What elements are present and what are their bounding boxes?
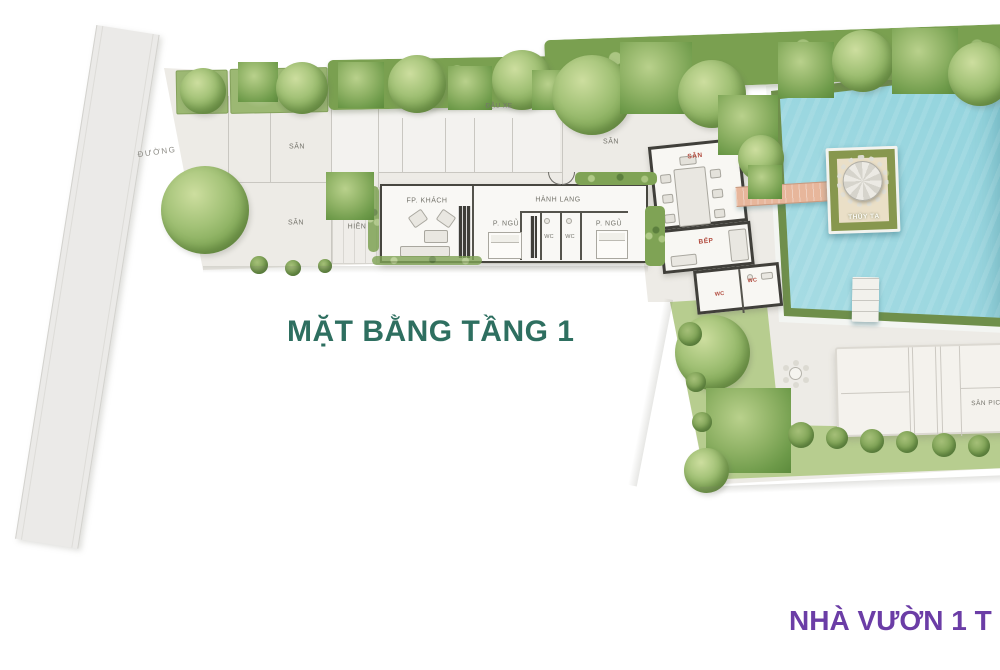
wc-fixture [566,218,572,224]
court-line [935,347,938,437]
caption-text: NHÀ VƯỜN 1 T [789,605,992,637]
tree [180,68,226,114]
yard-label: SÂN [603,139,619,146]
court-label: SÂN PICK [971,399,1000,407]
shrub [285,260,301,276]
tree [338,62,384,108]
wardrobe [530,216,537,258]
hedge [372,256,482,265]
armchair-icon [408,209,429,229]
bedroom-label: P. NGỦ [596,221,622,228]
court-line [908,347,911,437]
wall [540,213,542,260]
tree [276,62,328,114]
shrub [860,429,884,453]
wall [560,213,562,260]
coffee-table-icon [424,230,448,243]
tree [778,42,834,98]
tree [684,448,729,493]
shrub [250,256,268,274]
bedroom-label: P. NGỦ [493,221,519,228]
chair-icon [664,214,676,224]
wc-fixture [761,272,774,280]
door-arc [548,172,561,185]
chair-icon [660,174,672,184]
tree [832,30,894,92]
tree [238,62,278,102]
parking-bay-line [512,118,513,172]
shrub [318,259,332,273]
shrub [896,431,918,453]
shrub [826,427,848,449]
porch-label: HIÊN [348,224,367,231]
floor-plan-canvas: SÂN PICK [0,0,1000,670]
shrub [968,435,990,457]
armchair-icon [436,209,457,229]
island-label: THỦY TẠ [848,213,880,221]
tree [161,166,249,254]
chair-icon [710,169,722,179]
wall [472,186,474,260]
page-title: MẶT BẰNG TẦNG 1 [287,315,575,349]
hedge [575,172,657,185]
shrub [692,412,712,432]
road-label: ĐƯỜNG [137,145,177,159]
hallway-label: HÀNH LANG [535,197,580,204]
chair-icon [712,188,724,198]
wall [520,211,628,213]
court-line [960,387,1000,389]
pavilion-wc-annex [693,262,783,315]
garden-table-icon [789,367,802,380]
wall [738,269,745,313]
parking-bay-line [445,118,446,172]
hedge [645,206,665,266]
bed-icon [488,232,522,259]
road [15,25,160,549]
pavilion-wc-label: WC [715,291,725,298]
dining-table-icon [673,166,711,227]
pickleball-court: SÂN PICK [835,343,1000,437]
wardrobe [458,206,471,258]
parking-label: ĐẬU XE [485,103,512,110]
wc-label: WC [565,234,575,240]
shrub [678,322,702,346]
wall [580,211,582,260]
kitchen-counter [728,228,749,262]
bed-icon [596,230,628,259]
pavilion-wc-label: WC [747,277,757,284]
wc-label: WC [544,234,554,240]
court-line [959,346,962,436]
edge-shadow [628,298,673,486]
pool-steps [852,277,880,322]
pool-island: THỦY TẠ [826,146,901,234]
shrub [932,433,956,457]
tree [892,28,958,94]
court-line [841,391,909,394]
tree [326,172,374,220]
tree [748,165,782,199]
parking-bay-line [474,118,475,172]
yard-label: SÂN [288,220,304,227]
shrub [686,372,706,392]
tree [388,55,446,113]
wc-fixture [544,218,550,224]
paving-line [378,172,562,173]
court-net-line [912,347,915,437]
yard-label: SÂN [289,144,305,151]
kitchen-counter [670,254,697,268]
shrub [788,422,814,448]
door-arc [562,172,575,185]
living-room-label: FP. KHÁCH [407,198,448,205]
parking-bay-line [402,118,403,172]
court-line [940,346,943,436]
chair-icon [714,208,726,218]
chair-icon [662,194,674,204]
